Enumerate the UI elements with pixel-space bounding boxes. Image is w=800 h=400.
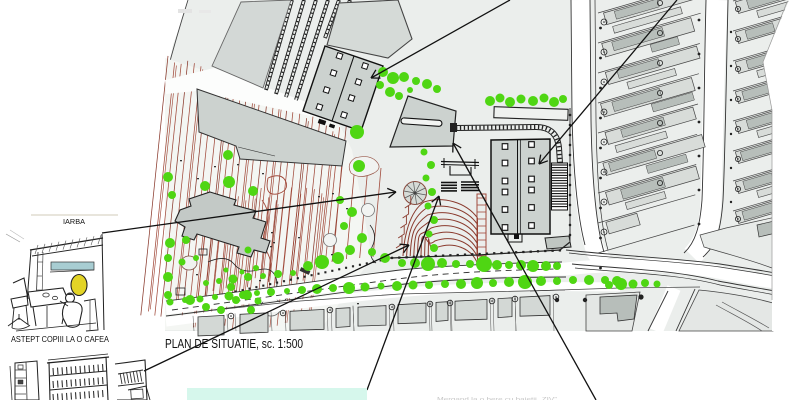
svg-text:PLAN DE SITUATIE, sc. 1:500: PLAN DE SITUATIE, sc. 1:500 <box>165 337 303 351</box>
svg-text:IARBA: IARBA <box>63 217 85 226</box>
svg-text:ASTEPT COPIII LA O CAFEA: ASTEPT COPIII LA O CAFEA <box>11 334 109 344</box>
